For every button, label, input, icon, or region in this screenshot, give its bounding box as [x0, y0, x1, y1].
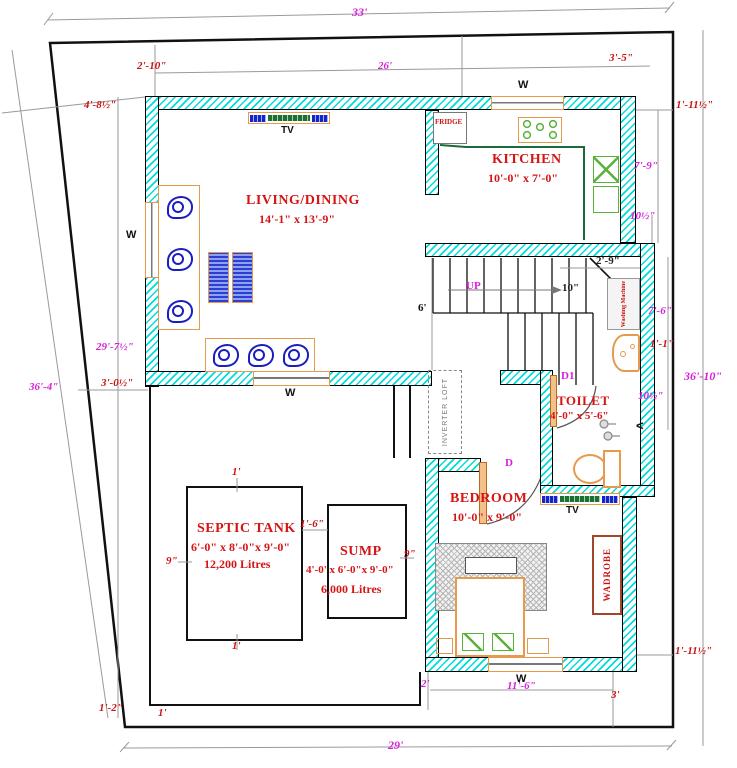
pillow: [492, 633, 514, 651]
door-toilet-label: D1: [561, 371, 574, 382]
dining-table: [208, 252, 229, 303]
toilet-size: 4'-0" x 5'-6": [550, 411, 609, 422]
stairs-up-label: UP: [466, 281, 481, 292]
dining-table: [232, 252, 253, 303]
wall-stair-top: [425, 243, 655, 257]
stove: [518, 117, 562, 143]
person-icon: [283, 344, 309, 367]
dim-stair-head: 2'-9": [596, 256, 620, 267]
toilet-wc: [573, 450, 623, 486]
dim-step-right-mid: 10½": [638, 391, 663, 402]
dim-yard-step: 2': [421, 679, 430, 690]
dim-wall-offset-bottom: 1': [158, 708, 167, 719]
inverter-loft: INVERTER LOFT: [428, 370, 462, 454]
washing-machine: Washing Machine: [607, 278, 640, 330]
tv-speaker-icon: [602, 496, 618, 503]
living-room-label: LIVING/DINING: [246, 194, 360, 208]
tv-speaker-icon: [312, 115, 328, 122]
dim-gap-top-right: 1'-11½": [676, 100, 713, 111]
inverter-loft-label: INVERTER LOFT: [442, 378, 449, 446]
dim-gap-bottom-right: 1'-11½": [675, 646, 712, 657]
sump-outline: [328, 505, 406, 618]
window-bedroom-bottom: [488, 657, 563, 672]
door-bedroom-label: D: [505, 458, 513, 469]
living-room-size: 14'-1" x 13'-9": [259, 213, 335, 225]
dim-passage-width: 6': [418, 303, 427, 314]
tv-speaker-icon: [542, 496, 558, 503]
person-icon: [213, 344, 239, 367]
wall-bedroom-right: [622, 497, 637, 672]
dim-corner-bottom-left: 1'-2": [99, 703, 123, 714]
dim-septic-bottom: 1': [232, 641, 241, 652]
dim-stair-tread: 10": [562, 283, 579, 294]
kitchen-label: KITCHEN: [492, 153, 562, 167]
sump-label: SUMP: [340, 545, 382, 559]
dim-plot-width-top: 33': [352, 6, 367, 18]
dim-building-height-left: 29'-7½": [96, 342, 134, 353]
dim-gap-left: 3'-0½": [101, 378, 133, 389]
sump-size: 4'-0' x 6'-0"x 9'-0": [306, 565, 394, 576]
window-kitchen-top: [491, 96, 564, 110]
up-arrow: [552, 286, 562, 294]
dim-bedroom-width-bottom: 11'-6": [507, 681, 536, 692]
window-left-label: W: [126, 230, 136, 241]
tv-unit-bedroom: [540, 493, 620, 505]
toilet-label: TOILET: [557, 394, 610, 407]
dim-plot-width-bottom: 29': [388, 739, 403, 751]
tv-speaker-icon: [250, 115, 266, 122]
sump-capacity: 6,000 Litres: [321, 583, 381, 595]
side-table: [436, 638, 453, 654]
bedroom-size: 10'-0" x 9'-0": [452, 511, 522, 523]
dim-gap-right-mid: 1'-1": [650, 339, 674, 350]
dim-stair-right-height: 7'-6": [648, 306, 672, 317]
dim-corner-top-left: 4'-8½": [84, 100, 116, 111]
wardrobe: WADROBE: [592, 535, 622, 615]
dim-septic-left: 9": [166, 556, 178, 567]
dim-building-width-top: 26': [378, 61, 392, 72]
side-table: [527, 638, 549, 654]
person-icon: [167, 300, 193, 323]
kitchen-drainboard: [593, 186, 619, 213]
kitchen-size: 10'-0" x 7'-0": [488, 172, 558, 184]
tv-living-label: TV: [281, 126, 294, 136]
window-living-bottom: [253, 371, 330, 386]
tv-unit-living: [248, 112, 330, 124]
tv-screen-icon: [560, 496, 600, 502]
dim-offset-top-left: 2'-10": [137, 61, 166, 72]
wardrobe-label: WADROBE: [602, 548, 612, 602]
dim-plot-height-right: 36'-10": [684, 370, 722, 382]
pillow: [462, 633, 484, 651]
dim-offset-bottom-right: 3': [611, 690, 620, 701]
dim-septic-top: 1': [232, 467, 241, 478]
fridge: FRIDGE: [433, 112, 467, 144]
window-living-left: [145, 202, 159, 278]
washing-machine-label: Washing Machine: [621, 281, 627, 327]
person-icon: [167, 196, 193, 219]
kitchen-sink: [593, 156, 619, 183]
stove-burners-icon: [519, 118, 561, 141]
window-living-bottom-label: W: [285, 388, 295, 399]
tv-bedroom-label: TV: [566, 506, 579, 516]
dim-plot-height-left: 36'-4": [29, 382, 58, 393]
window-top-label: W: [518, 80, 528, 91]
dim-septic-sump-gap: 1'-6": [300, 519, 324, 530]
septic-tank-capacity: 12,200 Litres: [204, 558, 270, 570]
dim-sump-right: 9": [404, 549, 416, 560]
floor-plan-canvas: FRIDGE Washing Machine: [0, 0, 737, 768]
person-icon: [167, 248, 193, 271]
wash-basin: [612, 334, 640, 372]
septic-tank-label: SEPTIC TANK: [197, 522, 296, 536]
arrow-left-glyph: <: [636, 419, 644, 432]
bedroom-label: BEDROOM: [450, 492, 527, 506]
tv-screen-icon: [268, 115, 310, 121]
dim-kitchen-right-height: 7'-9": [634, 161, 658, 172]
fridge-label: FRIDGE: [435, 119, 462, 126]
dim-offset-top-right: 3'-5": [609, 53, 633, 64]
person-icon: [248, 344, 274, 367]
wall-right-mid: [640, 243, 655, 497]
bed-head-table: [465, 557, 517, 574]
dim-step-top-right: 10½": [630, 211, 655, 222]
septic-tank-size: 6'-0" x 8'-0"x 9'-0": [191, 541, 290, 553]
